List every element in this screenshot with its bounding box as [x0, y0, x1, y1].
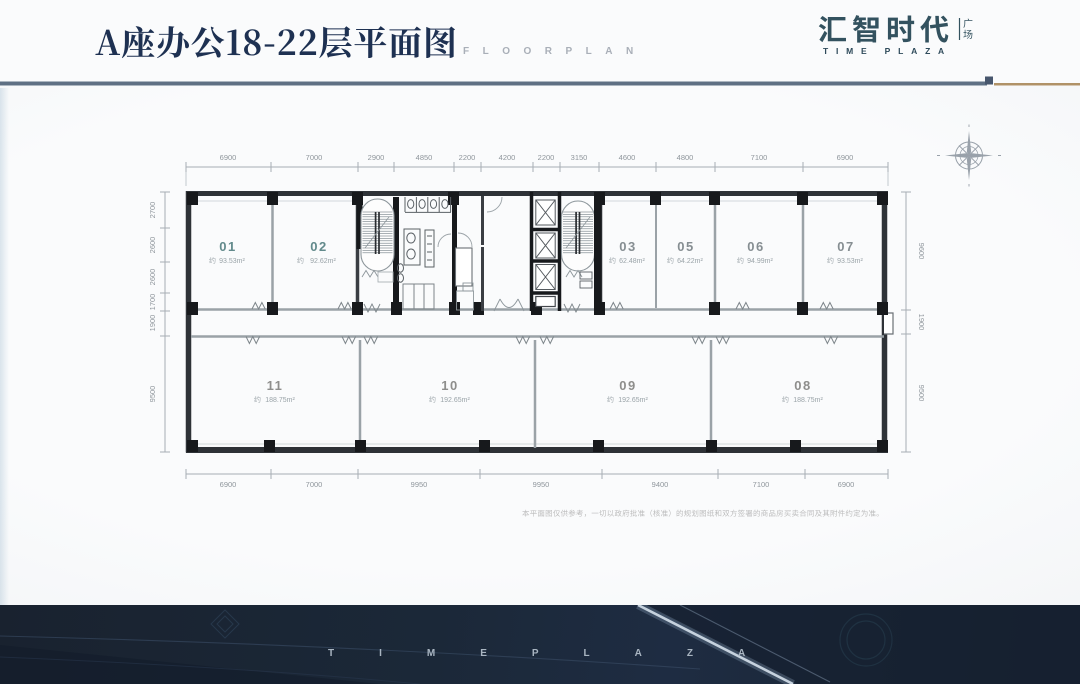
svg-text:6900: 6900: [838, 480, 855, 489]
svg-text:6900: 6900: [220, 153, 237, 162]
svg-text:64.22m²: 64.22m²: [677, 258, 703, 265]
svg-text:93.53m²: 93.53m²: [837, 258, 863, 265]
svg-text:07: 07: [837, 239, 854, 254]
svg-text:06: 06: [747, 239, 764, 254]
svg-text:192.65m²: 192.65m²: [618, 397, 648, 404]
svg-text:188.75m²: 188.75m²: [793, 397, 823, 404]
svg-text:4800: 4800: [677, 153, 694, 162]
svg-text:7100: 7100: [753, 480, 770, 489]
svg-text:2900: 2900: [368, 153, 385, 162]
svg-text:9500: 9500: [917, 385, 926, 402]
svg-text:9400: 9400: [652, 480, 669, 489]
svg-text:3150: 3150: [571, 153, 588, 162]
svg-text:2600: 2600: [148, 237, 157, 254]
svg-text:188.75m²: 188.75m²: [265, 397, 295, 404]
svg-text:4600: 4600: [619, 153, 636, 162]
svg-text:9600: 9600: [917, 243, 926, 260]
svg-text:94.99m²: 94.99m²: [747, 258, 773, 265]
svg-text:4200: 4200: [499, 153, 516, 162]
svg-text:11: 11: [267, 378, 284, 393]
svg-text:192.65m²: 192.65m²: [440, 397, 470, 404]
svg-text:92.62m²: 92.62m²: [310, 258, 336, 265]
svg-text:05: 05: [677, 239, 694, 254]
svg-text:1700: 1700: [148, 294, 157, 311]
svg-text:7000: 7000: [306, 480, 323, 489]
svg-text:02: 02: [310, 239, 327, 254]
svg-text:9950: 9950: [533, 480, 550, 489]
svg-text:62.48m²: 62.48m²: [619, 258, 645, 265]
svg-text:9950: 9950: [411, 480, 428, 489]
svg-text:2200: 2200: [459, 153, 476, 162]
svg-text:10: 10: [441, 378, 458, 393]
svg-text:03: 03: [619, 239, 636, 254]
svg-text:9500: 9500: [148, 386, 157, 403]
svg-text:01: 01: [219, 239, 236, 254]
svg-text:93.53m²: 93.53m²: [219, 258, 245, 265]
svg-text:09: 09: [619, 378, 636, 393]
svg-text:2600: 2600: [148, 269, 157, 286]
svg-text:6900: 6900: [220, 480, 237, 489]
svg-text:2200: 2200: [538, 153, 555, 162]
svg-text:6900: 6900: [837, 153, 854, 162]
svg-text:2700: 2700: [148, 202, 157, 219]
svg-text:1900: 1900: [148, 315, 157, 332]
svg-text:7000: 7000: [306, 153, 323, 162]
svg-text:7100: 7100: [751, 153, 768, 162]
svg-text:4850: 4850: [416, 153, 433, 162]
svg-text:1900: 1900: [917, 314, 926, 331]
svg-text:08: 08: [794, 378, 811, 393]
